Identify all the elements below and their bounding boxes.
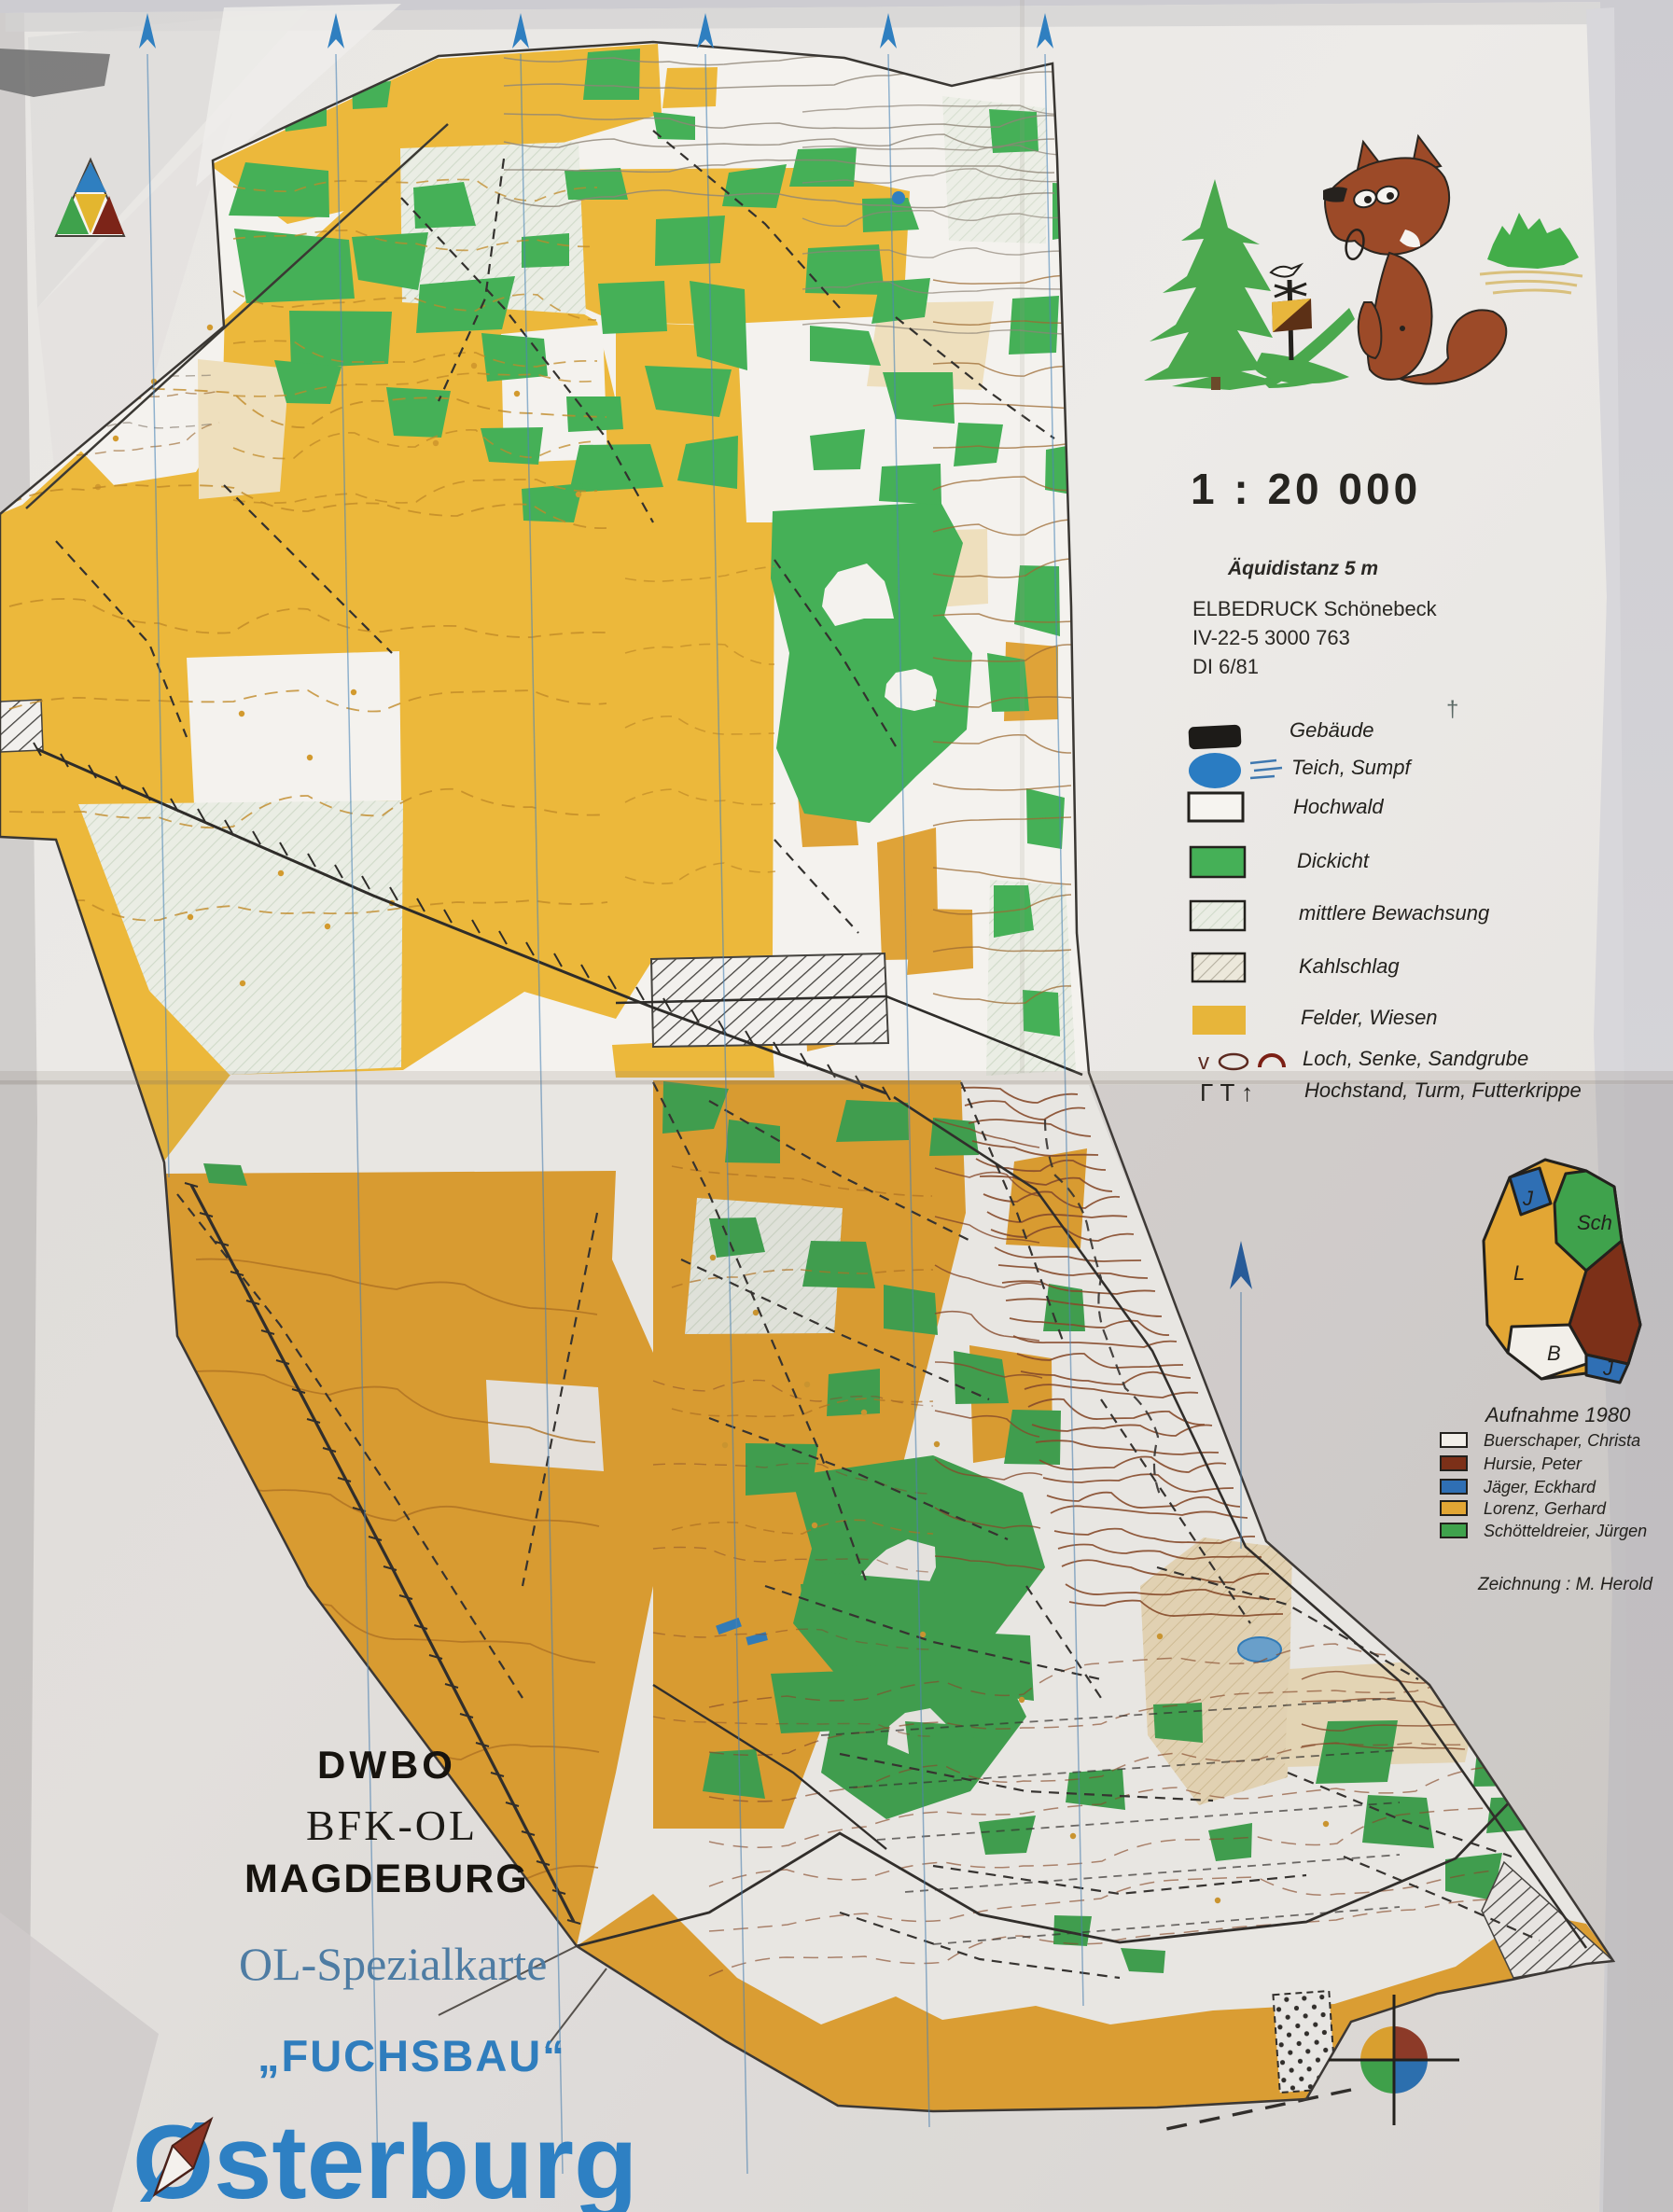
- svg-text:Felder, Wiesen: Felder, Wiesen: [1301, 1006, 1438, 1029]
- svg-text:DWBO: DWBO: [317, 1743, 456, 1787]
- svg-text:Jäger, Eckhard: Jäger, Eckhard: [1483, 1478, 1596, 1496]
- svg-text:Äquidistanz 5 m: Äquidistanz 5 m: [1227, 558, 1378, 579]
- svg-text:J: J: [1522, 1187, 1534, 1210]
- svg-text:Lorenz, Gerhard: Lorenz, Gerhard: [1484, 1499, 1607, 1518]
- svg-text:„FUCHSBAU“: „FUCHSBAU“: [258, 2031, 566, 2080]
- svg-text:Zeichnung : M. Herold: Zeichnung : M. Herold: [1477, 1575, 1653, 1594]
- svg-text:Hochwald: Hochwald: [1293, 795, 1384, 818]
- svg-text:Teich, Sumpf: Teich, Sumpf: [1291, 756, 1413, 779]
- svg-text:IV-22-5 3000 763: IV-22-5 3000 763: [1192, 626, 1350, 649]
- svg-text:Γ T ↑: Γ T ↑: [1200, 1078, 1253, 1106]
- svg-text:Gebäude: Gebäude: [1290, 718, 1374, 742]
- svg-text:Dickicht: Dickicht: [1297, 849, 1370, 872]
- svg-text:Sch: Sch: [1577, 1211, 1612, 1234]
- svg-text:†: †: [1446, 697, 1458, 722]
- svg-text:Kahlschlag: Kahlschlag: [1299, 954, 1400, 978]
- svg-text:Schötteldreier, Jürgen: Schötteldreier, Jürgen: [1484, 1522, 1647, 1540]
- svg-text:Hochstand, Turm, Futterkrippe: Hochstand, Turm, Futterkrippe: [1304, 1078, 1582, 1102]
- svg-text:Buerschaper, Christa: Buerschaper, Christa: [1484, 1431, 1640, 1450]
- svg-text:BFK-OL: BFK-OL: [306, 1802, 478, 1849]
- svg-text:J: J: [1602, 1356, 1614, 1380]
- svg-text:L: L: [1513, 1261, 1525, 1285]
- svg-text:Aufnahme 1980: Aufnahme 1980: [1484, 1403, 1631, 1426]
- svg-text:Hursie, Peter: Hursie, Peter: [1484, 1454, 1582, 1473]
- svg-text:DI 6/81: DI 6/81: [1192, 655, 1259, 678]
- svg-text:MAGDEBURG: MAGDEBURG: [244, 1857, 529, 1901]
- svg-text:mittlere Bewachsung: mittlere Bewachsung: [1299, 901, 1490, 925]
- svg-text:OL-Spezialkarte: OL-Spezialkarte: [239, 1938, 547, 1990]
- svg-text:1 : 20 000: 1 : 20 000: [1191, 465, 1421, 513]
- svg-text:B: B: [1547, 1342, 1561, 1365]
- svg-text:v: v: [1198, 1050, 1209, 1075]
- svg-text:ELBEDRUCK Schönebeck: ELBEDRUCK Schönebeck: [1192, 597, 1438, 620]
- svg-text:Loch, Senke, Sandgrube: Loch, Senke, Sandgrube: [1303, 1047, 1528, 1070]
